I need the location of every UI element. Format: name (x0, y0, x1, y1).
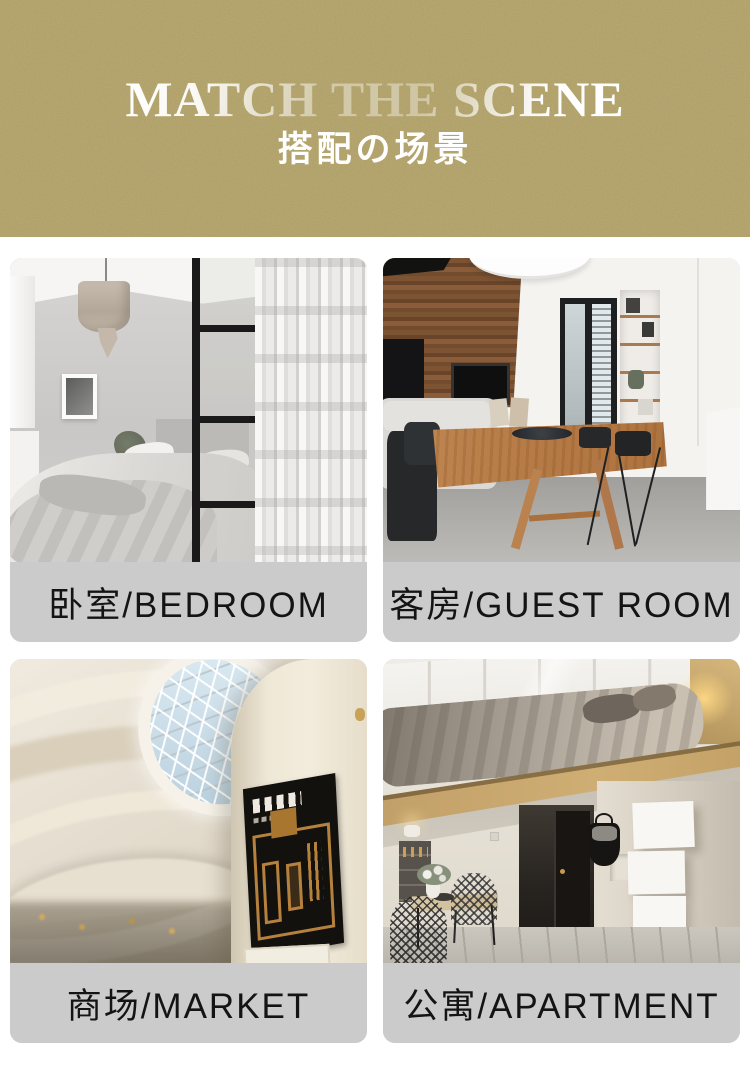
wall-sconce (404, 825, 420, 837)
shelf-object (628, 370, 644, 388)
pillar-lower-panel (243, 944, 330, 963)
market-label-bar: 商场/MARKET (10, 963, 367, 1043)
scene-promo-page: MATCH THE SCENE 搭配の场景 (0, 0, 750, 1072)
kitchen-counter (706, 407, 740, 510)
partition-frame-rail (199, 325, 256, 332)
lamp-cord (105, 258, 107, 282)
guest-room-photo (383, 258, 740, 562)
dining-chair (615, 431, 651, 455)
bedroom-window (10, 276, 35, 428)
apartment-label: 公寓/APARTMENT (403, 978, 719, 1029)
bedroom-label-bar: 卧室/BEDROOM (10, 562, 367, 642)
sheer-curtain-shading (255, 258, 367, 562)
shelf-bottles (403, 847, 428, 856)
wall-box-shelf (627, 850, 685, 894)
hanging-bag-flap (592, 826, 617, 841)
wire-chair (390, 896, 447, 963)
partition-frame-rail (199, 501, 256, 508)
glass-partition (199, 258, 256, 562)
wall-tv (383, 339, 424, 403)
scene-card-market: 商场/MARKET (10, 659, 367, 1043)
scene-card-guest-room: 客房/GUEST ROOM (383, 258, 740, 642)
apartment-photo (383, 659, 740, 963)
dining-chair (579, 427, 611, 448)
side-chair (489, 399, 510, 428)
market-label: 商场/MARKET (67, 978, 311, 1029)
shelf-object (642, 322, 654, 337)
poster-diagram-block (271, 807, 298, 839)
scene-card-apartment: 公寓/APARTMENT (383, 659, 740, 1043)
banner-title: MATCH THE SCENE (0, 74, 750, 124)
scene-card-bedroom: 卧室/BEDROOM (10, 258, 367, 642)
guest-room-label: 客房/GUEST ROOM (389, 577, 733, 628)
scene-grid: 卧室/BEDROOM (10, 258, 740, 1043)
wall-seam (697, 258, 699, 446)
shelf-object (626, 298, 640, 313)
partition-frame-rail (199, 416, 256, 423)
market-photo (10, 659, 367, 963)
poster-diagram-rect (286, 861, 303, 911)
pendant-lamp (78, 281, 130, 333)
entry-door (554, 811, 590, 939)
light-switch (490, 832, 499, 841)
partition-frame-post (192, 258, 200, 562)
wall-box-shelf (633, 896, 687, 929)
wall-picture-frame (62, 374, 98, 420)
scene-banner: MATCH THE SCENE 搭配の场景 (0, 0, 750, 237)
wall-box-shelf (632, 801, 694, 849)
shops-blur (10, 902, 260, 963)
guest-room-label-bar: 客房/GUEST ROOM (383, 562, 740, 642)
wire-chair (451, 873, 497, 925)
shop-lights (39, 914, 45, 920)
banner-subtitle: 搭配の场景 (0, 132, 750, 167)
pillar-gold-detail (355, 708, 366, 722)
side-chair (509, 397, 529, 427)
bedroom-photo (10, 258, 367, 562)
window-pane (565, 304, 585, 429)
concrete-floor (383, 477, 740, 562)
bedroom-label: 卧室/BEDROOM (48, 577, 329, 628)
shelf-object (638, 399, 652, 414)
apartment-label-bar: 公寓/APARTMENT (383, 963, 740, 1043)
product-poster (243, 773, 344, 959)
window-louvers (592, 304, 612, 429)
